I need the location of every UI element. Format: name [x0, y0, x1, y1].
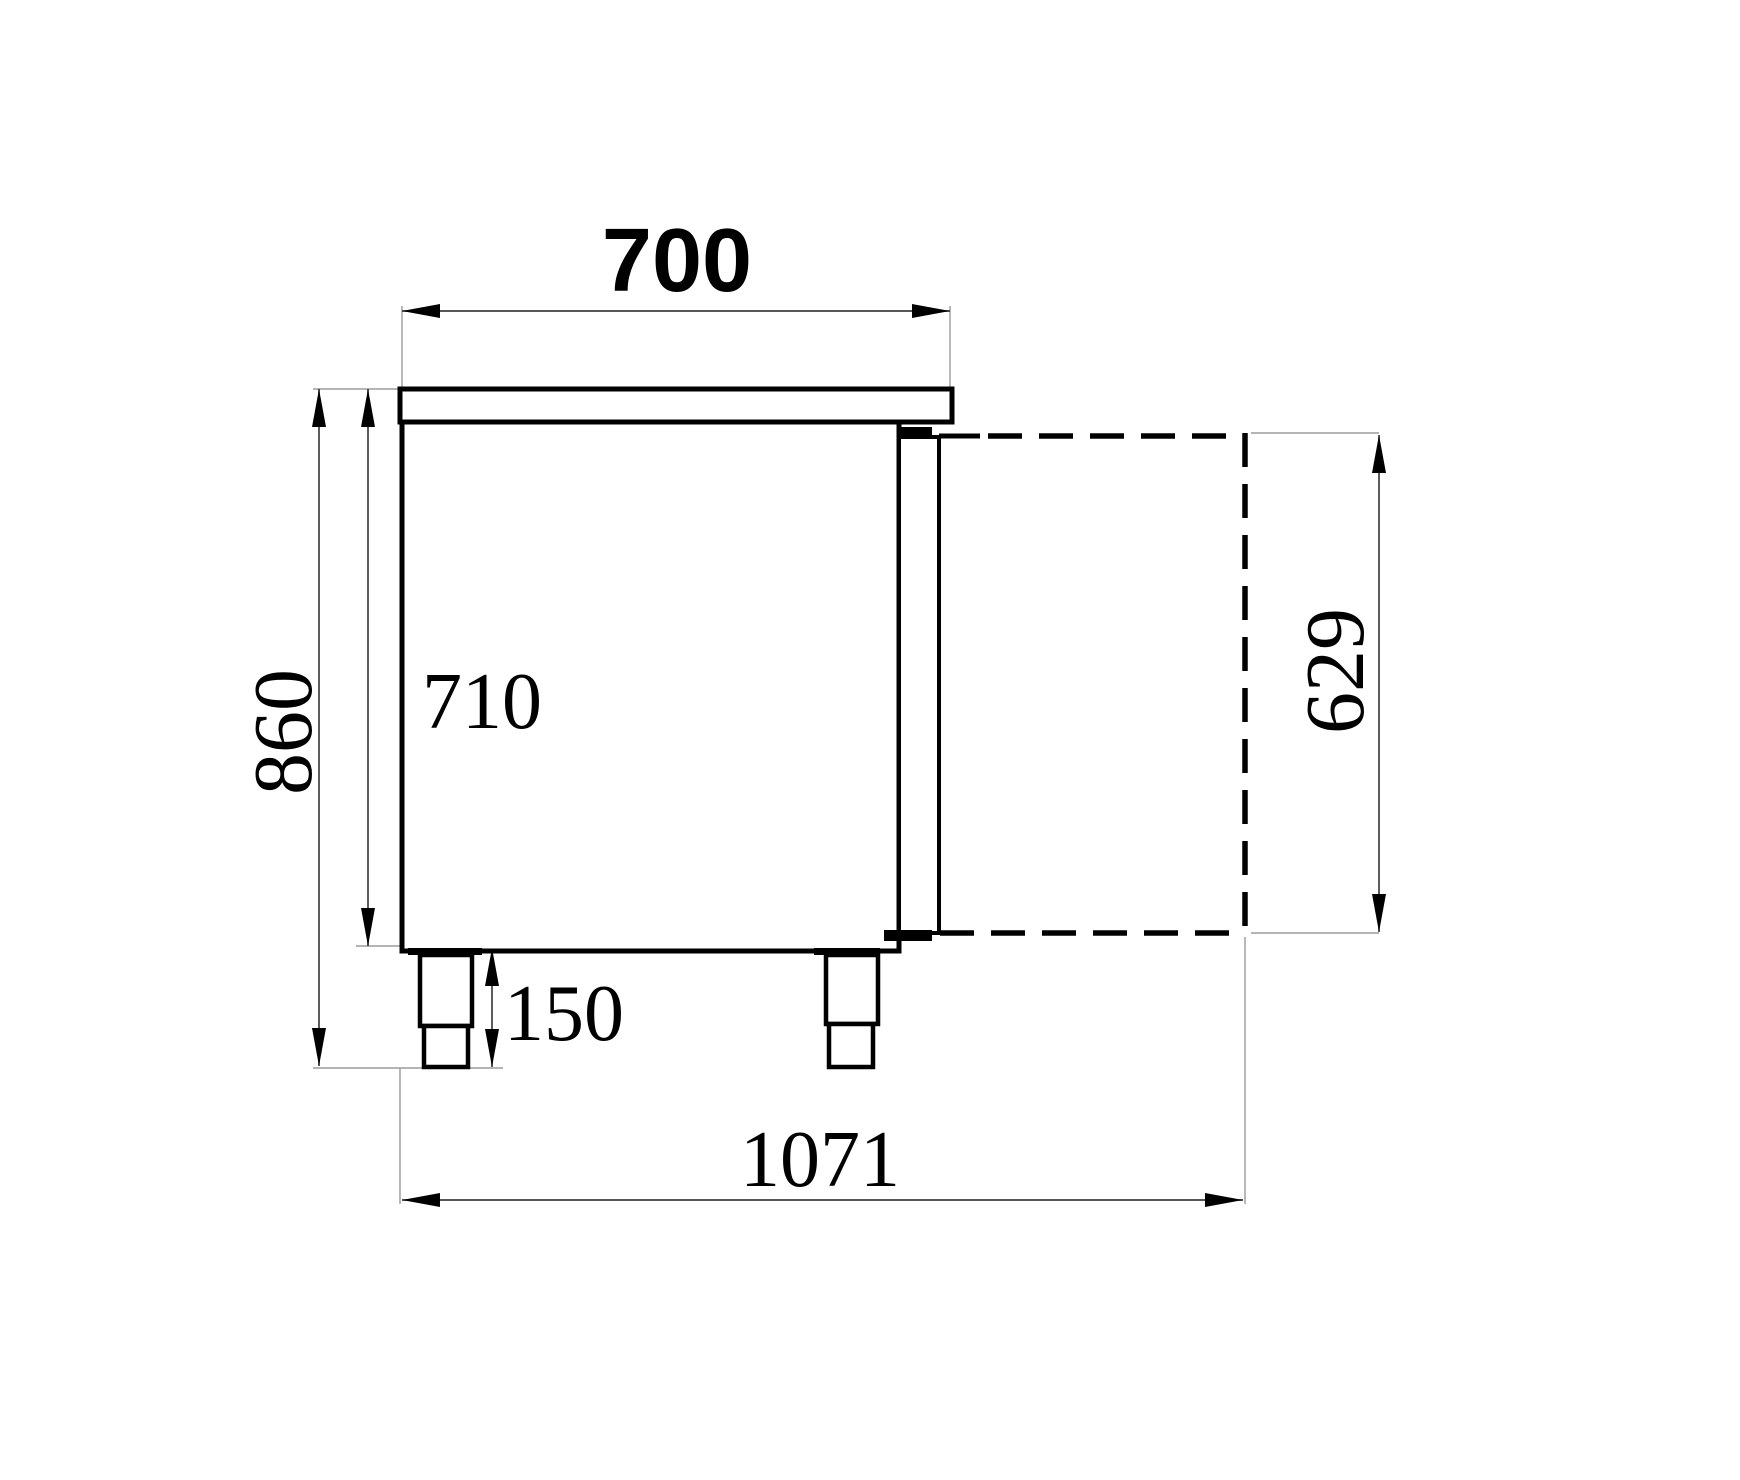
arrowhead-860-bottom [312, 1028, 326, 1066]
arrowhead-150-bottom [485, 1029, 499, 1067]
dim-label-629: 629 [1289, 608, 1382, 734]
door-top-hinge [899, 427, 932, 439]
dim-label-150: 150 [504, 970, 624, 1058]
arrowhead-629-bottom [1372, 894, 1386, 932]
right-leg-upper [826, 955, 878, 1024]
dimension-drawing: 700 710 860 150 1071 629 [0, 0, 1740, 1480]
dim-label-700: 700 [602, 211, 752, 311]
door-open-dashed [940, 433, 1245, 933]
door-bottom-hinge [884, 930, 932, 941]
arrowhead-700-left [402, 304, 440, 318]
right-leg-foot [829, 1024, 873, 1067]
arrowhead-629-top [1372, 435, 1386, 473]
arrowhead-700-right [912, 304, 950, 318]
arrowhead-710-bottom [361, 908, 375, 946]
technical-drawing-canvas: 700 710 860 150 1071 629 [0, 0, 1740, 1480]
left-leg-plate [408, 948, 482, 955]
countertop [400, 389, 952, 422]
left-leg-foot [424, 1026, 468, 1067]
arrowhead-150-top [485, 948, 499, 986]
arrowhead-1071-left [402, 1193, 440, 1207]
right-leg-plate [814, 948, 880, 955]
arrowhead-1071-right [1205, 1193, 1243, 1207]
dim-label-1071: 1071 [740, 1116, 900, 1204]
dim-label-860: 860 [237, 669, 330, 795]
arrowhead-860-top [312, 389, 326, 427]
left-leg-upper [420, 955, 472, 1026]
door-panel-closed [899, 437, 939, 933]
arrowhead-710-top [361, 389, 375, 427]
dim-label-710: 710 [422, 658, 542, 746]
